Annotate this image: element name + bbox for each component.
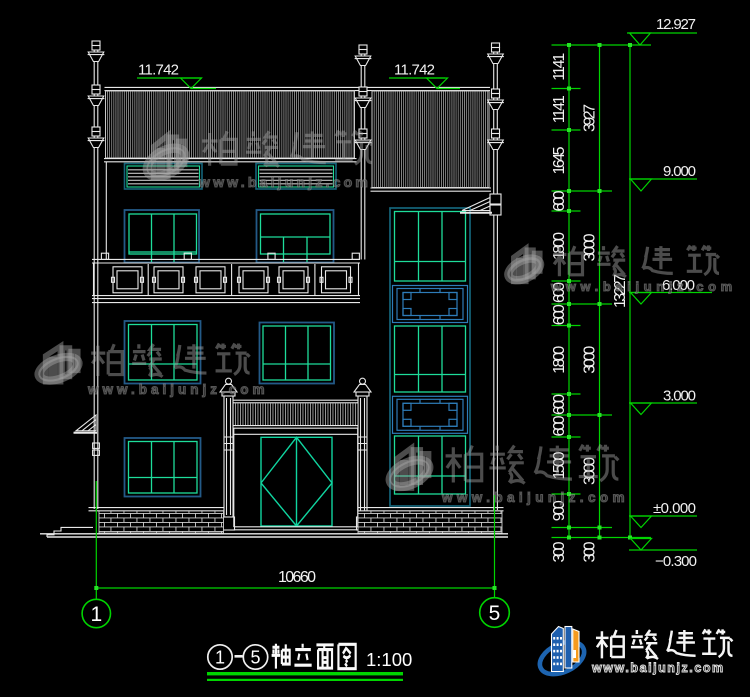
svg-text:3.000: 3.000 bbox=[663, 388, 696, 405]
svg-text:5: 5 bbox=[489, 602, 501, 625]
svg-text:9.000: 9.000 bbox=[663, 163, 696, 180]
svg-text:600: 600 bbox=[551, 394, 568, 415]
svg-text:3000: 3000 bbox=[582, 346, 599, 374]
svg-text:300: 300 bbox=[582, 541, 599, 562]
svg-text:11.742: 11.742 bbox=[138, 62, 179, 79]
svg-text:www.baijunjz.com: www.baijunjz.com bbox=[87, 382, 269, 397]
svg-text:12.927: 12.927 bbox=[656, 16, 696, 33]
svg-text:300: 300 bbox=[551, 541, 568, 562]
svg-text:1141: 1141 bbox=[551, 53, 568, 81]
svg-text:1: 1 bbox=[90, 603, 102, 626]
svg-text:www.baijunjz.com: www.baijunjz.com bbox=[591, 661, 725, 675]
svg-text:11.742: 11.742 bbox=[394, 62, 435, 79]
svg-text:www.baijunjz.com: www.baijunjz.com bbox=[198, 174, 371, 190]
svg-text:600: 600 bbox=[551, 415, 568, 436]
svg-text:10660: 10660 bbox=[278, 569, 316, 586]
svg-text:±0.000: ±0.000 bbox=[653, 500, 696, 517]
svg-text:5: 5 bbox=[250, 648, 260, 668]
svg-text:3000: 3000 bbox=[582, 457, 599, 485]
svg-text:600: 600 bbox=[551, 304, 568, 325]
svg-text:1141: 1141 bbox=[551, 95, 568, 123]
svg-text:www.baijunjz.com: www.baijunjz.com bbox=[550, 279, 737, 294]
svg-text:1: 1 bbox=[215, 648, 225, 668]
svg-text:1800: 1800 bbox=[551, 346, 568, 374]
svg-text:1:100: 1:100 bbox=[366, 649, 412, 670]
svg-text:www.baijunjz.com: www.baijunjz.com bbox=[441, 490, 629, 505]
svg-text:3927: 3927 bbox=[582, 104, 599, 132]
svg-text:600: 600 bbox=[551, 190, 568, 211]
svg-text:1645: 1645 bbox=[551, 146, 568, 174]
svg-text:−0.300: −0.300 bbox=[655, 553, 697, 570]
